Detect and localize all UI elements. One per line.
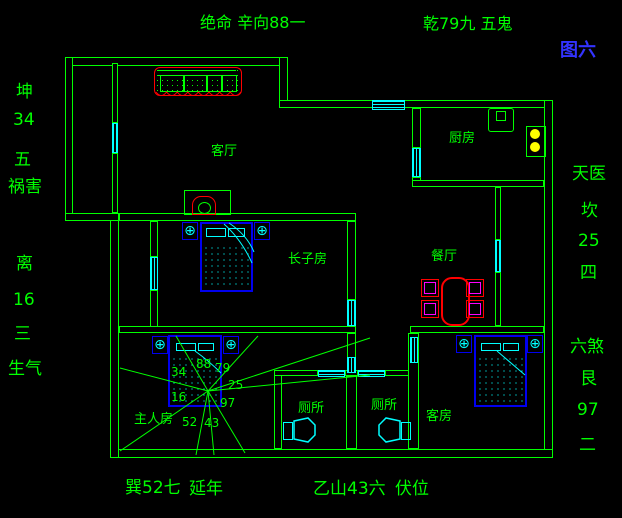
room-label-toilet2: 厕所 [371,399,397,413]
room-label-guest: 客房 [426,410,452,424]
room-label-dining: 餐厅 [431,250,457,264]
sofa-seat [184,75,207,92]
annotation-right-gen: 艮 [580,370,597,389]
compass-number-79: 79 [215,362,230,375]
compass-number-25: 25 [228,379,243,392]
wall-bottom-outer [110,449,553,458]
pillow [198,343,214,351]
annotation-right-25: 25 [578,232,600,251]
window-corridor [347,300,356,326]
annotation-left-san: 三 [14,325,31,344]
window-top [372,100,405,110]
annotation-right-si: 四 [580,264,597,283]
toilet-tank [283,422,293,440]
mattress [203,245,250,289]
compass-number-97: 97 [220,397,235,410]
sink-faucet [496,111,506,121]
wall-sonroom-left-a [150,221,158,257]
toilet-tank [401,422,411,440]
pillow [206,228,226,237]
sofa-seat [222,75,237,92]
room-label-kitchen: 厨房 [449,132,475,146]
wall-left-outer-upper [65,57,73,221]
annotation-left-huohai: 祸害 [8,178,42,197]
nightstand: ⊕ [527,335,543,353]
wall-dining-right-a [495,187,501,240]
annotation-bottom-yannian: 延年 [189,480,223,499]
dining-chair [421,279,439,297]
wall-master-right [274,373,282,449]
wall-master-top [119,326,356,333]
window-sonroom-left [150,257,158,290]
annotation-bottom-xun: 巽52七 [125,479,181,498]
sofa-seat [160,75,184,92]
sofa-seat [207,75,222,92]
wall-top-kitchen [279,100,553,108]
mattress [477,356,524,404]
annotation-right-er: 二 [579,436,596,455]
floorplan-canvas: ⊕ ⊕ ⊕ ⊕ ⊕ ⊕ [0,0,622,518]
chair-cushion [198,202,211,214]
wall-dining-right-b [495,272,501,326]
wall-left-connector [65,213,119,221]
compass-number-88: 88 [196,358,211,371]
room-label-son: 长子房 [288,253,327,267]
wall-bath-top-a [274,370,318,376]
annotation-left-shengqi: 生气 [8,360,42,379]
compass-number-52: 52 [182,416,197,429]
figure-label: 图六 [560,41,596,61]
wall-bath-divider [346,376,357,449]
annotation-right-liusha: 六煞 [570,338,604,357]
wall-living-bottom [119,213,356,221]
pillow [176,343,196,351]
wall-living-inner-left-a [112,63,118,123]
annotation-bottom-fuwei: 伏位 [395,480,429,499]
wall-sonroom-right [347,221,356,300]
wall-living-inner-left-b [112,153,118,213]
annotation-bottom-yishan: 乙山43六 [313,480,386,499]
stove-burner [530,129,540,139]
nightstand: ⊕ [182,222,198,240]
window-kitchen-left [412,148,421,177]
window-living-left [112,123,118,153]
stove-burner [530,142,540,152]
window-guest-left [410,337,418,363]
annotation-left-34: 34 [13,111,35,130]
dining-chair [421,300,439,318]
nightstand: ⊕ [223,336,239,354]
nightstand: ⊕ [456,335,472,353]
room-label-living: 客厅 [211,145,237,159]
annotation-right-97: 97 [577,401,599,420]
dining-chair [466,279,484,297]
annotation-left-li: 离 [16,255,33,274]
toilet-bowl-icon [379,418,400,442]
annotation-left-wu: 五 [14,151,31,170]
annotation-left-kun: 坤 [16,83,33,102]
wall-sonroom-left-b [150,290,158,330]
room-label-master: 主人房 [134,413,173,427]
nightstand: ⊕ [152,336,168,354]
annotation-right-tianyi: 天医 [572,165,606,184]
room-label-toilet1: 厕所 [298,402,324,416]
pillow [503,343,519,351]
window-corridor-lower [347,357,356,373]
wall-left-outer-lower [110,213,119,458]
wall-kitchen-left-a [412,108,421,148]
dining-chair [466,300,484,318]
annotation-top-left: 绝命 辛向88一 [200,14,305,32]
annotation-right-kan: 坎 [581,202,598,221]
compass-number-16: 16 [171,391,186,404]
wall-top-living [65,57,288,66]
window-bath2-top [358,370,385,377]
pillow [481,343,501,351]
pillow [228,228,245,237]
compass-number-34: 34 [171,366,186,379]
nightstand: ⊕ [254,222,270,240]
annotation-top-right: 乾79九 五鬼 [423,15,512,33]
window-dining-right [495,240,501,272]
wall-kitchen-bottom [412,180,544,187]
toilet-bowl-icon [294,418,315,442]
window-bath1-top [318,370,345,377]
annotation-left-16: 16 [13,291,35,310]
wall-guest-top [410,326,544,333]
compass-number-43: 43 [204,417,219,430]
